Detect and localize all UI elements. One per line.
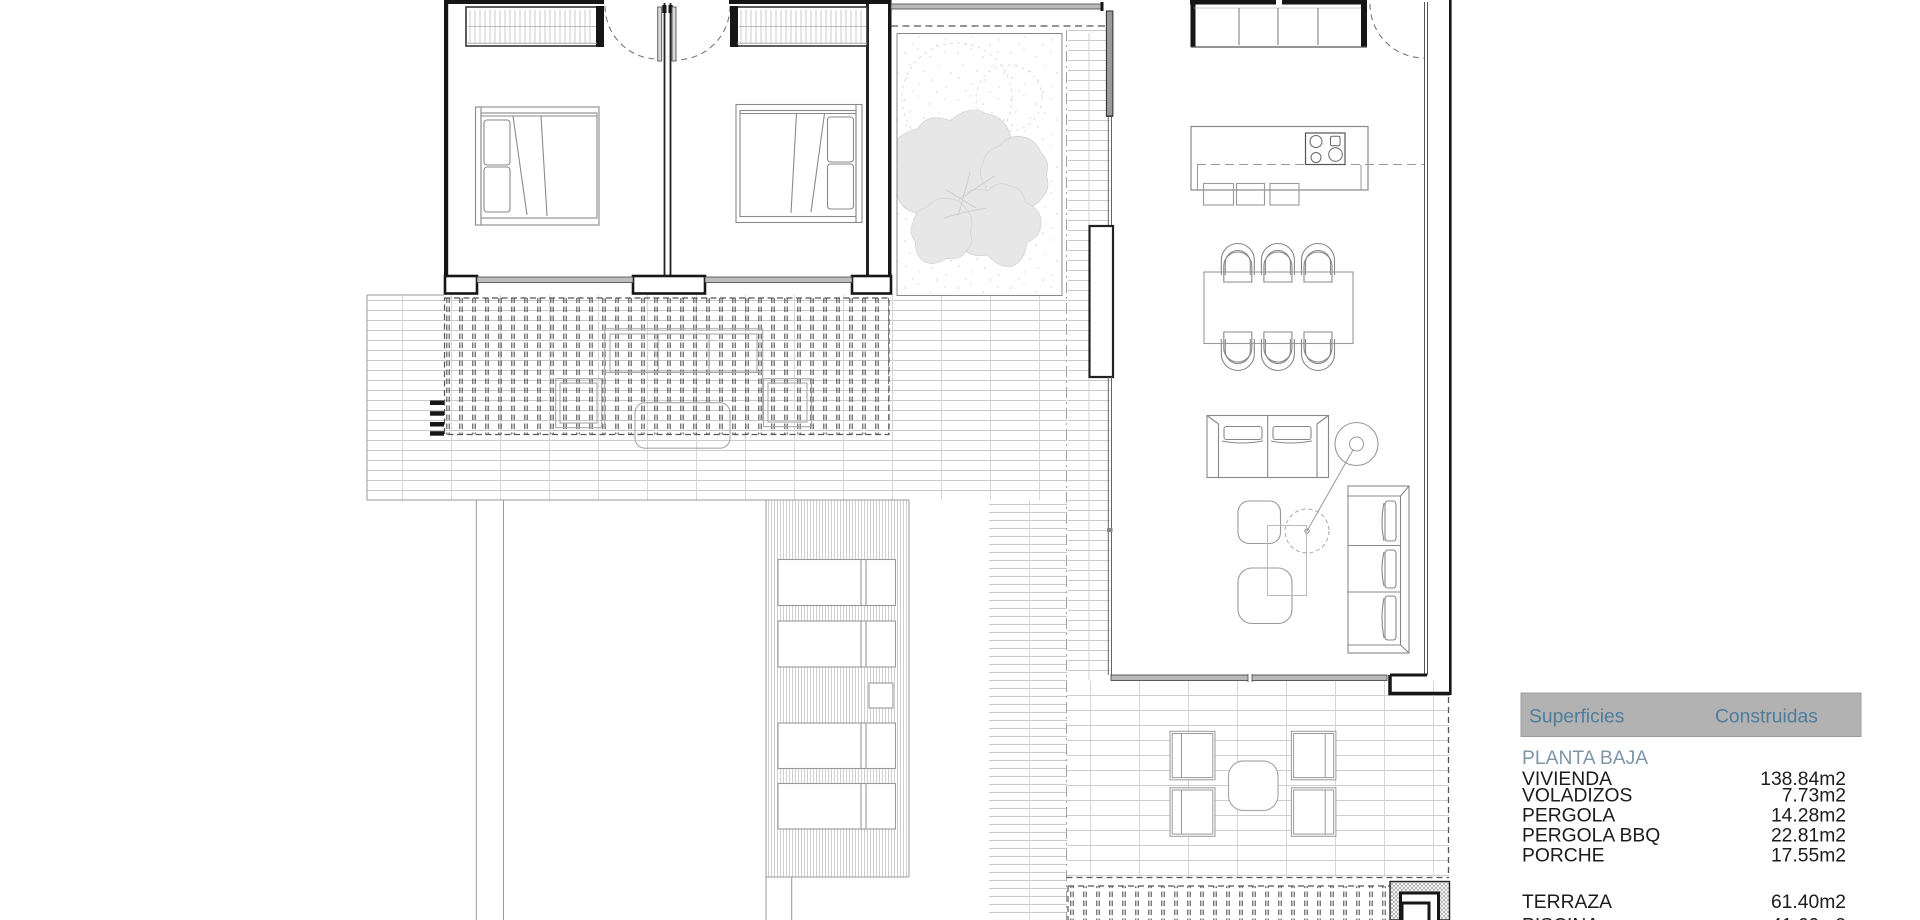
svg-text:61.40m2: 61.40m2 — [1771, 892, 1846, 913]
svg-text:7.73m2: 7.73m2 — [1782, 786, 1846, 807]
svg-text:PISCINA: PISCINA — [1522, 916, 1599, 920]
svg-text:17.55m2: 17.55m2 — [1771, 846, 1846, 867]
svg-text:PERGOLA: PERGOLA — [1522, 806, 1615, 827]
svg-text:PORCHE: PORCHE — [1522, 846, 1605, 867]
svg-text:41.60m2: 41.60m2 — [1771, 916, 1846, 920]
svg-text:Superficies: Superficies — [1529, 707, 1624, 728]
svg-text:Construidas: Construidas — [1715, 707, 1818, 728]
svg-text:PERGOLA BBQ: PERGOLA BBQ — [1522, 826, 1660, 847]
svg-text:VOLADIZOS: VOLADIZOS — [1522, 786, 1632, 807]
svg-text:22.81m2: 22.81m2 — [1771, 826, 1846, 847]
svg-text:TERRAZA: TERRAZA — [1522, 892, 1612, 913]
svg-text:PLANTA BAJA: PLANTA BAJA — [1522, 748, 1648, 769]
svg-text:14.28m2: 14.28m2 — [1771, 806, 1846, 827]
